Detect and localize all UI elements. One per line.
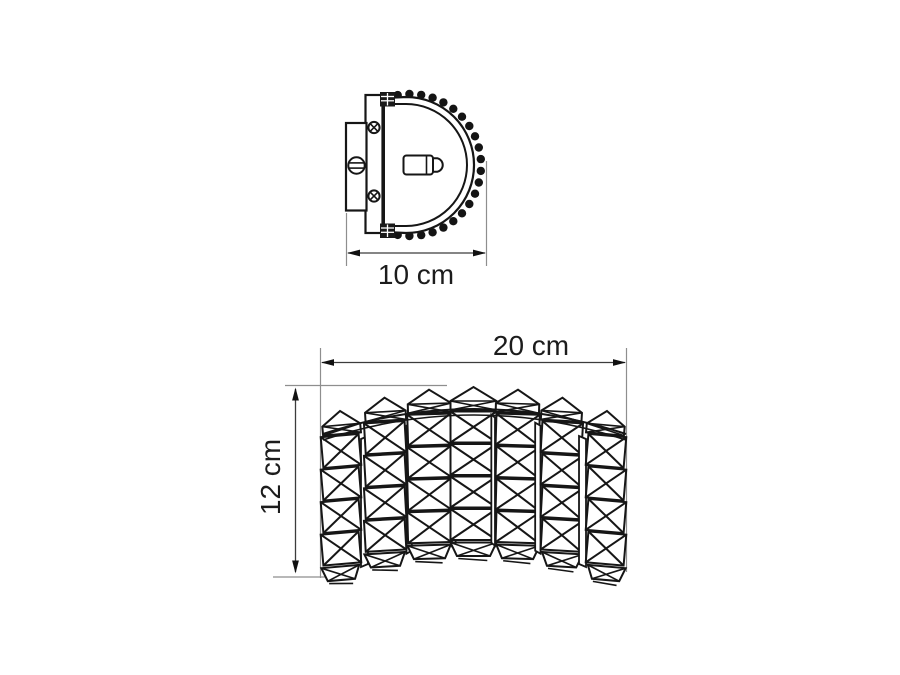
crystal-square [541, 486, 583, 519]
drawing-canvas: 10 cm 20 cm 12 cm [0, 0, 900, 675]
rim-bead [477, 167, 485, 175]
crystal-square [407, 479, 451, 511]
column-side-facet [535, 423, 540, 554]
crystal-square [586, 466, 627, 500]
crystal-column-7 [579, 409, 626, 586]
height-dimension: 12 cm [255, 388, 299, 574]
crystal-square [451, 444, 497, 475]
crystal-pendant [496, 545, 540, 564]
arrow-right-icon [473, 250, 486, 257]
crystal-square [451, 412, 497, 443]
front-view: 20 cm 12 cm [255, 330, 627, 586]
crystal-cap [451, 387, 497, 410]
clamp-top [381, 93, 395, 107]
crystal-square [364, 454, 406, 487]
crystal-square [541, 519, 583, 552]
side-view: 10 cm [346, 90, 487, 290]
arrow-right-icon [613, 359, 626, 366]
column-side-facet [579, 436, 586, 567]
crystal-square [451, 477, 497, 508]
rim-bead [471, 190, 479, 198]
phillips-screw-icon [368, 190, 379, 201]
mounting-bracket [366, 95, 383, 233]
width-dimension: 20 cm [321, 330, 626, 366]
crystal-square [407, 446, 451, 478]
crystal-square [321, 466, 362, 500]
crystal-pendant [364, 552, 406, 572]
crystal-square [586, 531, 627, 565]
crystal-panel [321, 387, 627, 586]
crystal-square [496, 479, 540, 511]
rim-bead [458, 209, 466, 217]
crystal-column-4 [451, 387, 497, 561]
rim-bead [475, 143, 483, 151]
crystal-pendant [407, 545, 451, 564]
crystal-square [321, 499, 362, 533]
crystal-square [451, 509, 497, 540]
clamp-bottom [381, 224, 395, 238]
column-side-facet [491, 415, 495, 546]
depth-dimension-label: 10 cm [378, 259, 454, 290]
slotted-screw-icon [348, 157, 364, 173]
crystal-square [364, 486, 406, 519]
crystal-pendant [586, 565, 625, 586]
socket-cap [433, 158, 443, 171]
phillips-screw-icon [368, 122, 379, 133]
rim-bead [465, 122, 473, 130]
height-dimension-label: 12 cm [255, 439, 286, 515]
crystal-square [364, 519, 406, 552]
crystal-column-1 [321, 409, 368, 586]
rim-bead [475, 178, 483, 186]
arrow-left-icon [321, 359, 334, 366]
crystal-square [321, 531, 362, 565]
rim-bead [465, 200, 473, 208]
crystal-square [541, 454, 583, 487]
crystal-pendant [541, 552, 583, 572]
arrow-left-icon [347, 250, 360, 257]
rim-bead [458, 113, 466, 121]
arrow-down-icon [292, 561, 299, 574]
crystal-square [407, 511, 451, 543]
arrow-up-icon [292, 388, 299, 401]
width-dimension-label: 20 cm [493, 330, 569, 361]
lamp-socket [404, 156, 443, 175]
crystal-pendant [321, 565, 360, 586]
crystal-square [496, 511, 540, 543]
crystal-pendant [451, 543, 497, 561]
rim-bead [449, 105, 457, 113]
rim-bead [449, 217, 457, 225]
crystal-square [496, 446, 540, 478]
rim-bead [477, 155, 485, 163]
rim-bead [471, 132, 479, 140]
crystal-square [586, 434, 627, 468]
crystal-square [586, 499, 627, 533]
